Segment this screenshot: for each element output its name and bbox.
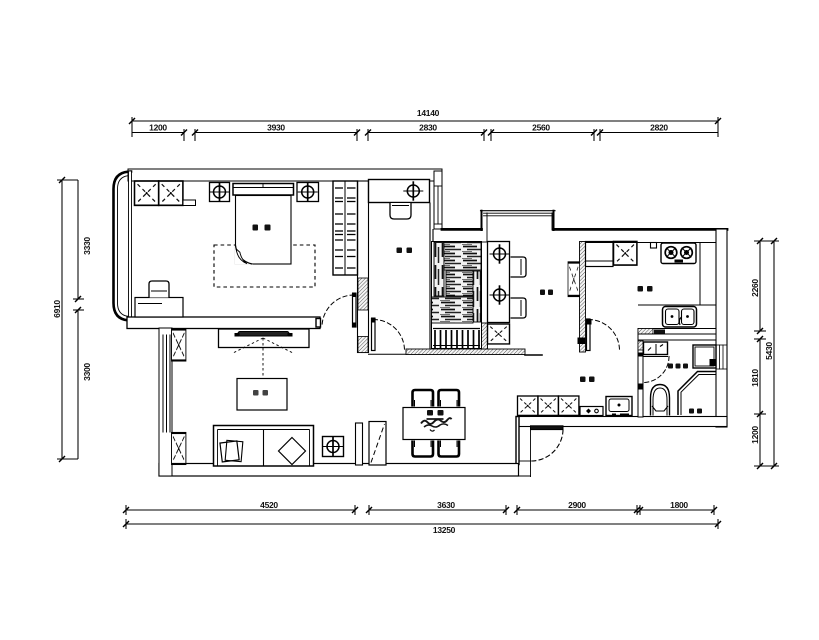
svg-text:2830: 2830 [419,123,437,133]
svg-text:1200: 1200 [750,426,760,444]
svg-text:3630: 3630 [437,500,455,510]
svg-text:4520: 4520 [260,500,278,510]
svg-text:2260: 2260 [750,279,760,297]
svg-text:1800: 1800 [670,500,688,510]
svg-text:2820: 2820 [650,123,668,133]
svg-text:2560: 2560 [532,123,550,133]
svg-text:14140: 14140 [417,108,440,118]
svg-text:3330: 3330 [82,237,92,255]
svg-text:6910: 6910 [52,300,62,318]
svg-text:2900: 2900 [568,500,586,510]
svg-text:5430: 5430 [764,342,774,360]
svg-text:13250: 13250 [433,525,456,535]
svg-text:3930: 3930 [267,123,285,133]
svg-text:1810: 1810 [750,369,760,387]
svg-text:3300: 3300 [82,363,92,381]
svg-text:1200: 1200 [149,123,167,133]
